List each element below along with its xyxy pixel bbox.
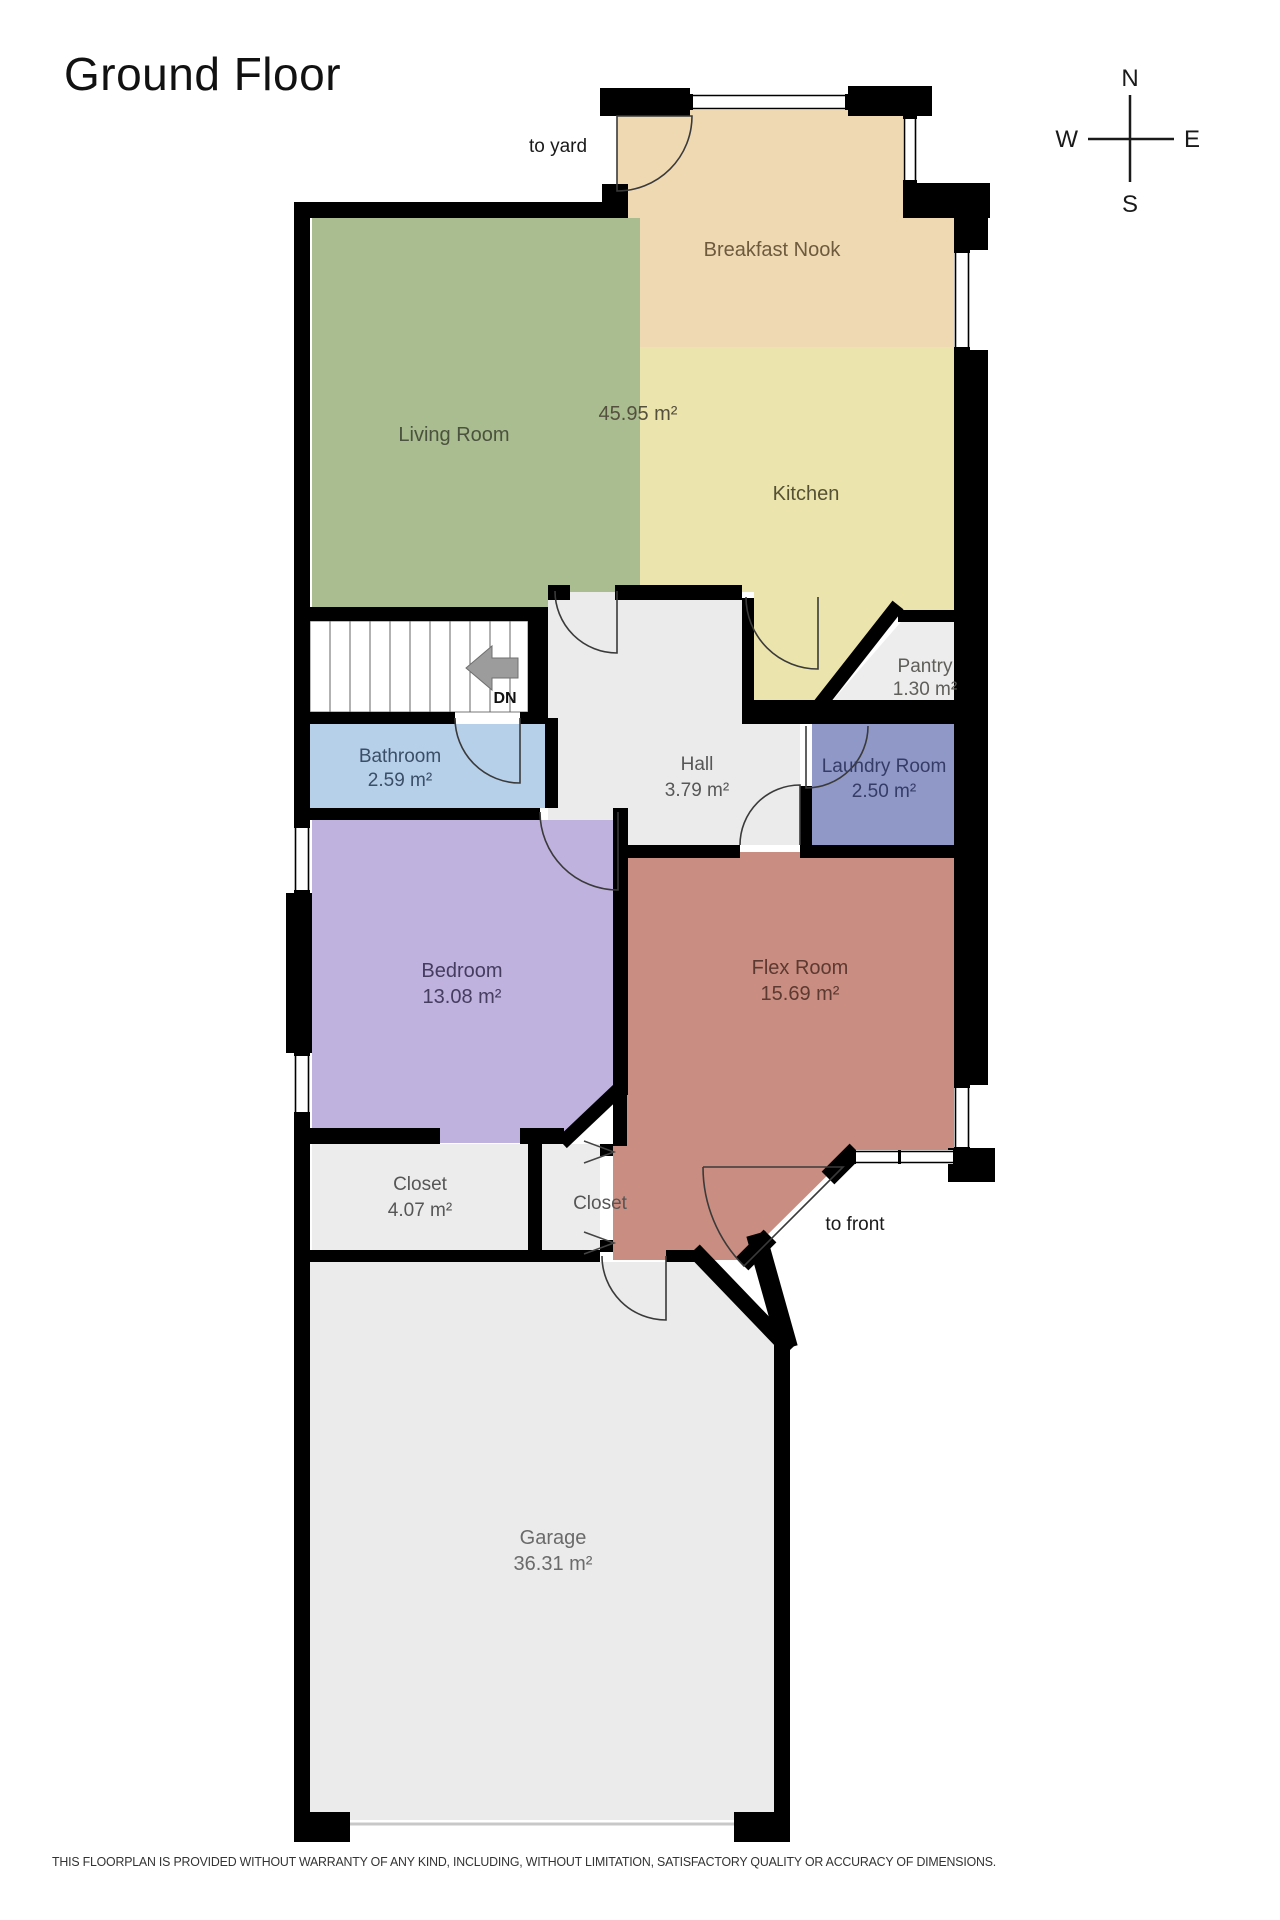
- label-closet: Closet: [393, 1174, 448, 1195]
- room-living-room: [312, 218, 640, 609]
- room-fills: [306, 100, 957, 1820]
- label-bathroom-area: 2.59 m²: [368, 770, 432, 791]
- compass-north: N: [1121, 65, 1138, 92]
- wall-stairs-top: [294, 607, 534, 621]
- wall-garage-foot-right: [734, 1812, 790, 1842]
- to-front-label: to front: [825, 1214, 885, 1235]
- wall-right-pantry-laundry: [954, 620, 988, 858]
- wall-garage-left: [294, 1262, 310, 1822]
- label-living-kitchen-area: 45.95 m²: [599, 403, 678, 425]
- window-flex-right: [954, 1085, 970, 1150]
- wall-flex-left: [613, 852, 627, 1146]
- label-bedroom-area: 13.08 m²: [423, 986, 502, 1008]
- wall-garage-foot-left: [294, 1812, 350, 1842]
- label-bathroom: Bathroom: [359, 746, 441, 767]
- compass-east: E: [1184, 126, 1200, 153]
- floorplan-page: DN: [0, 0, 1280, 1920]
- to-yard-label: to yard: [529, 136, 587, 157]
- window-bedroom-left-upper: [294, 825, 310, 893]
- label-flex-room: Flex Room: [752, 957, 849, 979]
- label-hall: Hall: [681, 754, 714, 775]
- compass-south: S: [1122, 191, 1138, 218]
- stairs-direction-label: DN: [493, 690, 516, 707]
- disclaimer-text: THIS FLOORPLAN IS PROVIDED WITHOUT WARRA…: [52, 1854, 996, 1869]
- wall-garage-top: [294, 1250, 600, 1262]
- wall-right-kitchen: [954, 350, 988, 620]
- staircase: DN: [310, 621, 528, 712]
- label-bedroom: Bedroom: [421, 960, 502, 982]
- wall-nook-top-left: [600, 88, 690, 116]
- label-living-room: Living Room: [398, 424, 509, 446]
- label-breakfast-nook: Breakfast Nook: [704, 239, 842, 261]
- label-laundry: Laundry Room: [822, 756, 947, 777]
- window-flex-bay: [853, 1150, 953, 1164]
- label-pantry: Pantry: [898, 656, 953, 677]
- label-kitchen: Kitchen: [773, 483, 840, 505]
- label-pantry-area: 1.30 m²: [893, 679, 957, 700]
- wall-left-exterior: [294, 202, 310, 724]
- wall-nook-step: [903, 183, 990, 218]
- label-closet-area: 4.07 m²: [388, 1200, 452, 1221]
- window-bedroom-left-lower: [294, 1053, 310, 1115]
- label-garage: Garage: [520, 1527, 587, 1549]
- window-nook-top: [690, 94, 848, 110]
- page-title: Ground Floor: [64, 48, 341, 100]
- wall-pantry-laundry: [742, 700, 954, 724]
- room-flex: [613, 852, 954, 1260]
- wall-living-top: [294, 202, 628, 218]
- wall-bathroom-top: [294, 712, 455, 724]
- label-hall-area: 3.79 m²: [665, 780, 729, 801]
- wall-bedroom-top: [294, 808, 540, 820]
- compass-west: W: [1055, 126, 1078, 153]
- label-garage-area: 36.31 m²: [514, 1553, 593, 1575]
- compass-icon: N S W E: [1055, 65, 1200, 218]
- wall-left-pier: [286, 893, 312, 1053]
- floorplan-canvas: DN: [0, 0, 1280, 1920]
- label-laundry-area: 2.50 m²: [852, 781, 916, 802]
- wall-garage-right: [774, 1345, 790, 1822]
- window-nook-right: [903, 116, 917, 183]
- label-closet-small: Closet: [573, 1193, 628, 1214]
- room-closet: [312, 1144, 528, 1252]
- wall-nook-top-right: [848, 86, 932, 116]
- wall-flex-right: [954, 858, 988, 1085]
- window-kitchen-right: [954, 250, 970, 350]
- label-flex-room-area: 15.69 m²: [761, 983, 840, 1005]
